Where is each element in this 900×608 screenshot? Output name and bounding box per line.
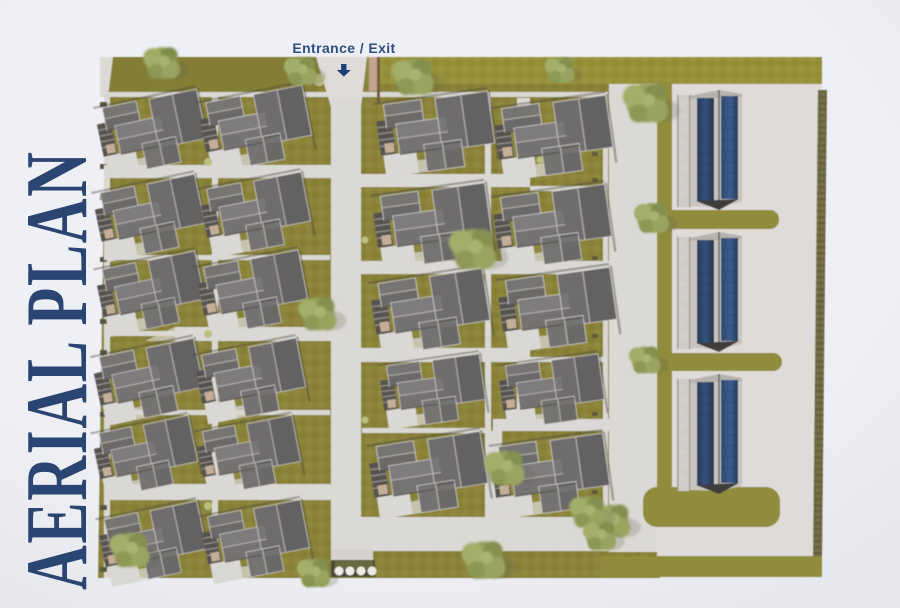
svg-text:Entrance / Exit: Entrance / Exit xyxy=(292,40,395,56)
svg-text:AERIAL PLAN: AERIAL PLAN xyxy=(9,150,106,590)
